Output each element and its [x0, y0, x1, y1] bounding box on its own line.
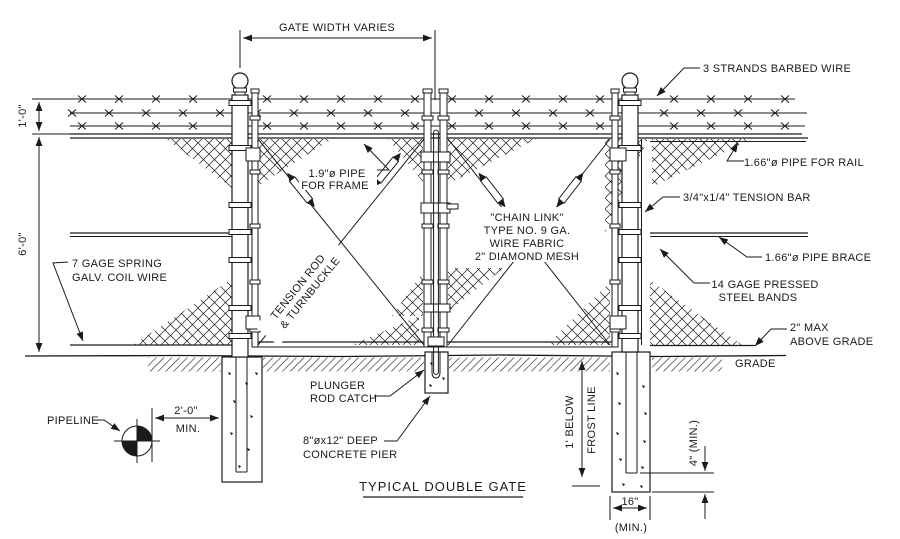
arrowhead-icon	[36, 343, 43, 352]
above-grade-label-line2: ABOVE GRADE	[790, 336, 873, 348]
arrowhead-icon	[579, 468, 586, 477]
pier-label-line1: 8"øx12" DEEP	[303, 435, 378, 447]
coil-wire-label-line1: 7 GAGE SPRING	[72, 258, 162, 270]
ball-cap	[232, 73, 248, 89]
steel-bands-label-line1: 14 GAGE PRESSED	[711, 279, 818, 291]
stile-band	[250, 116, 260, 120]
coil-wire-label-line2: GALV. COIL WIRE	[72, 272, 167, 284]
stile-band	[250, 280, 260, 284]
brace-label: 1.66"ø PIPE BRACE	[765, 252, 871, 264]
steel-bands-label-line2: STEEL BANDS	[719, 292, 798, 304]
arrowhead-icon	[155, 415, 164, 422]
pier-width-min: (MIN.)	[615, 522, 647, 534]
arrowhead-icon	[638, 505, 647, 512]
stile-band	[438, 170, 449, 174]
left-concrete-pier	[222, 357, 262, 482]
frost-dim-line2: FROST LINE	[586, 386, 598, 454]
stile-band	[422, 280, 433, 284]
grade-line	[25, 355, 786, 357]
frost-dim-line1: 1' BELOW	[564, 395, 576, 449]
stile-band	[422, 224, 433, 228]
stile-band	[422, 328, 433, 332]
post-band	[229, 306, 251, 311]
arrowhead-icon	[243, 35, 252, 42]
arrowhead-icon	[423, 35, 432, 42]
rail-label: 1.66"ø PIPE FOR RAIL	[744, 157, 864, 169]
post-band	[619, 230, 641, 235]
arrowhead-icon	[645, 204, 654, 212]
pipeline-symbol-icon	[114, 419, 160, 463]
stile-band	[610, 116, 620, 120]
leader-line	[384, 396, 430, 441]
chain-link-label-line3: WIRE FABRIC	[490, 238, 565, 250]
barbed-wire-label: 3 STRANDS BARBED WIRE	[703, 63, 851, 75]
chain-link-label-line4: 2" DIAMOND MESH	[475, 251, 579, 263]
above-grade-label-line1: 2" MAX	[790, 322, 829, 334]
barbed-height-dim: 1'-0"	[17, 104, 29, 127]
arrowhead-icon	[719, 237, 728, 245]
arrowhead-icon	[36, 137, 43, 146]
post-band	[229, 101, 251, 106]
pipeline-offset-min: MIN.	[176, 423, 200, 435]
plunger-label-line2: ROD CATCH	[310, 393, 377, 405]
pipeline-offset-dim: 2'-0"	[174, 405, 197, 417]
stile-band	[250, 170, 260, 174]
arrowhead-icon	[422, 396, 430, 405]
stile-band	[610, 224, 620, 228]
drawing-sheet: GATE WIDTH VARIES 3 STRANDS BARBED WIRE …	[0, 0, 900, 539]
ball-cap	[622, 73, 638, 89]
post-band	[229, 334, 251, 339]
arrowhead-icon	[702, 462, 709, 471]
plunger-catch	[428, 337, 444, 346]
tension-bar-label: 3/4"x1/4" TENSION BAR	[683, 192, 811, 204]
stile-band	[438, 328, 449, 332]
arrowhead-icon	[210, 415, 219, 422]
barbed-wires	[70, 99, 807, 126]
drawing-title: TYPICAL DOUBLE GATE	[359, 479, 527, 494]
pier-width-dim: 16"	[621, 496, 638, 508]
arrowhead-icon	[77, 331, 83, 341]
fence-height-dim: 6'-0"	[17, 232, 29, 255]
post-band	[619, 203, 641, 208]
arrowhead-icon	[702, 494, 709, 503]
post-band	[619, 258, 641, 263]
chain-link-label-line2: TYPE NO. 9 GA.	[484, 225, 571, 237]
arrowhead-icon	[111, 423, 120, 431]
post-band	[619, 306, 641, 311]
post-band	[619, 101, 641, 106]
stile-band	[438, 116, 449, 120]
plunger-label-line1: PLUNGER	[310, 380, 365, 392]
stile-band	[610, 170, 620, 174]
grade-label: GRADE	[735, 358, 776, 370]
stile-band	[610, 280, 620, 284]
frame-label-line2: FOR FRAME	[301, 180, 368, 192]
post-band	[229, 258, 251, 263]
post-band	[619, 334, 641, 339]
pier-label-line2: CONCRETE PIER	[303, 449, 397, 461]
double-gate-drawing: GATE WIDTH VARIES 3 STRANDS BARBED WIRE …	[0, 0, 900, 539]
stile-band	[422, 116, 433, 120]
center-catch-pier	[425, 352, 448, 393]
arrowhead-icon	[36, 102, 43, 111]
left-gate-post	[232, 73, 248, 357]
post-band	[229, 203, 251, 208]
chain-link-label-line1: "CHAIN LINK"	[490, 212, 563, 224]
ground	[25, 355, 786, 372]
post-band	[229, 230, 251, 235]
stile-band	[422, 170, 433, 174]
gate-width-dim-label: GATE WIDTH VARIES	[279, 22, 395, 34]
stile-band	[438, 224, 449, 228]
arrowhead-icon	[36, 122, 43, 131]
pipeline-label: PIPELINE	[47, 415, 99, 427]
tension-rod-label: TENSION ROD & TURNBUCKLE	[268, 247, 343, 331]
pier-embed-dim: 4" (MIN.)	[688, 420, 700, 466]
stile-band	[250, 224, 260, 228]
stile-band	[438, 280, 449, 284]
frame-label-line1: 1.9"ø PIPE	[308, 168, 365, 180]
